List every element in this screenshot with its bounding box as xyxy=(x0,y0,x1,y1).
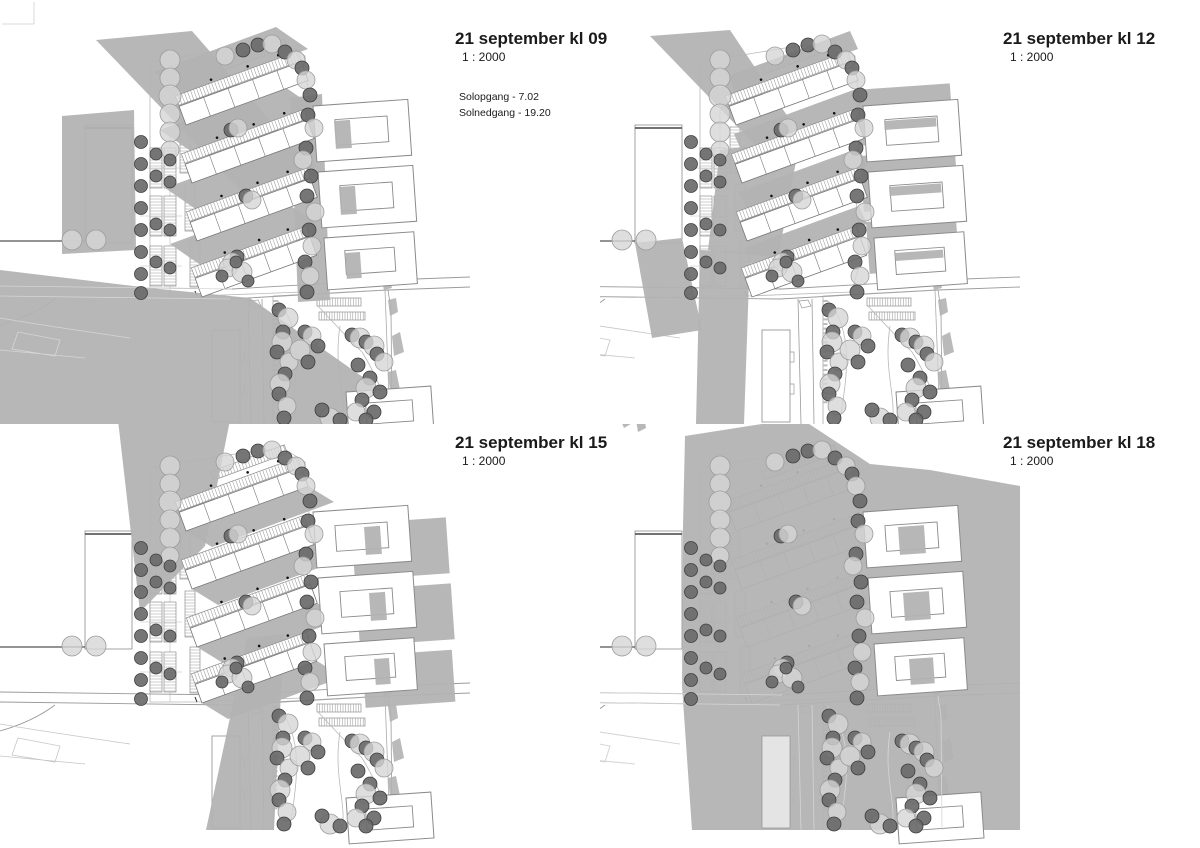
shadow-study-sheet: 21 september kl 09 1 : 2000 Solopgang - … xyxy=(0,0,1200,848)
scale-label: 1 : 2000 xyxy=(1010,454,1200,468)
caption-kl18: 21 september kl 18 1 : 2000 xyxy=(1003,433,1200,468)
panel-title: 21 september kl 12 xyxy=(1003,29,1200,48)
panel-kl09: 21 september kl 09 1 : 2000 Solopgang - … xyxy=(0,0,600,424)
scale-label: 1 : 2000 xyxy=(1010,50,1200,64)
site-plan-kl18 xyxy=(600,424,1200,848)
caption-kl12: 21 september kl 12 1 : 2000 xyxy=(1003,29,1200,64)
panel-kl18: 21 september kl 18 1 : 2000 xyxy=(600,424,1200,848)
site-plan-kl15 xyxy=(0,424,600,848)
panel-title: 21 september kl 18 xyxy=(1003,433,1200,452)
panel-kl12: 21 september kl 12 1 : 2000 xyxy=(600,0,1200,424)
panel-kl15: 21 september kl 15 1 : 2000 xyxy=(0,424,600,848)
